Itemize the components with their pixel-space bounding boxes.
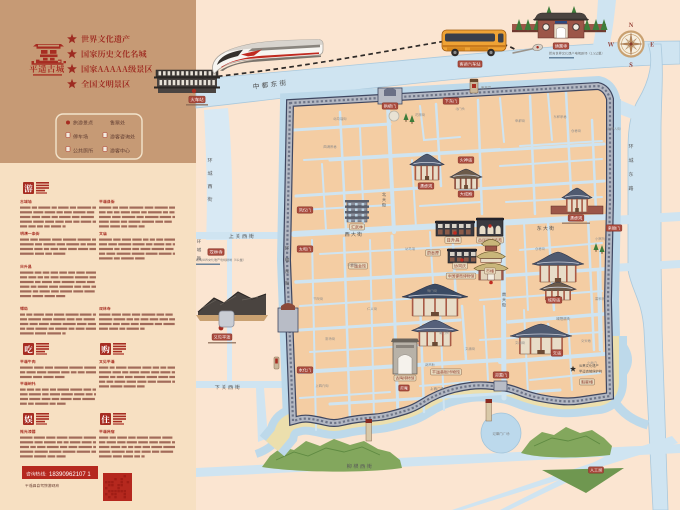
svg-text:18390962107 1: 18390962107 1 bbox=[49, 472, 91, 478]
